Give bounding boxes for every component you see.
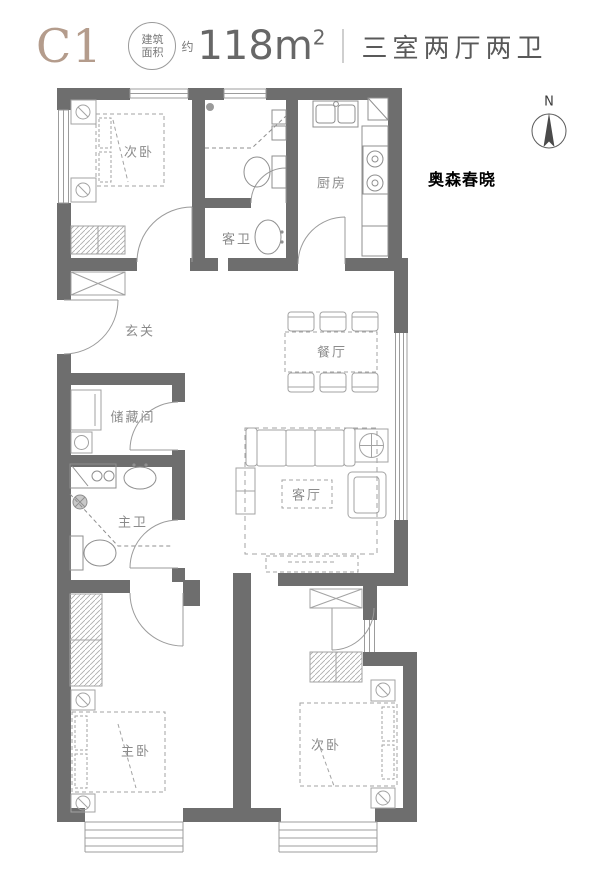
room-label-storage: 储藏间 bbox=[110, 407, 155, 426]
unit-label: C1 bbox=[36, 23, 102, 69]
bedroom-top-furniture bbox=[71, 100, 164, 254]
area-circle-badge: 建筑 面积 bbox=[128, 22, 176, 70]
area-approx-label: 约 bbox=[181, 38, 193, 55]
header-divider bbox=[342, 29, 344, 63]
room-label-living: 客厅 bbox=[292, 485, 322, 504]
room-label-foyer: 玄关 bbox=[125, 321, 155, 340]
room-label-master-bedroom: 主卧 bbox=[121, 741, 151, 760]
door-guest-bath-inner bbox=[251, 168, 286, 203]
floorplan-svg bbox=[0, 0, 600, 890]
area-circle-line1: 建筑 bbox=[141, 33, 163, 46]
area-value: 118m2 bbox=[197, 26, 325, 66]
room-label-kitchen: 厨房 bbox=[317, 173, 347, 192]
bedroom-bottom-furniture bbox=[300, 589, 397, 808]
room-label-guest-bath: 客卫 bbox=[222, 229, 252, 248]
master-bedroom-furniture bbox=[70, 594, 165, 812]
door-bedroom-top bbox=[137, 207, 192, 262]
compass-needle bbox=[544, 113, 555, 147]
area-number: 118m bbox=[197, 23, 312, 69]
header: C1 建筑 面积 约 118m2 三室两厅两卫 bbox=[36, 18, 548, 74]
door-master-bedroom bbox=[130, 593, 183, 646]
area-superscript: 2 bbox=[313, 26, 326, 50]
room-label-bedroom-top: 次卧 bbox=[124, 142, 154, 161]
door-kitchen bbox=[298, 217, 345, 264]
floorplan-page: C1 建筑 面积 约 118m2 三室两厅两卫 次卧 客卫 厨房 玄关 餐厅 储… bbox=[0, 0, 600, 890]
compass-north-label: N bbox=[544, 95, 554, 110]
area-circle-line2: 面积 bbox=[141, 46, 163, 59]
door-entry bbox=[64, 300, 118, 354]
compass bbox=[532, 113, 566, 148]
foyer-storage-furniture bbox=[71, 272, 125, 453]
project-watermark: 奥森春晓 bbox=[428, 166, 496, 190]
room-label-dining: 餐厅 bbox=[317, 342, 347, 361]
room-label-bedroom-bottom: 次卧 bbox=[311, 735, 341, 754]
layout-description: 三室两厅两卫 bbox=[362, 28, 548, 65]
room-label-master-bath: 主卫 bbox=[118, 512, 148, 531]
